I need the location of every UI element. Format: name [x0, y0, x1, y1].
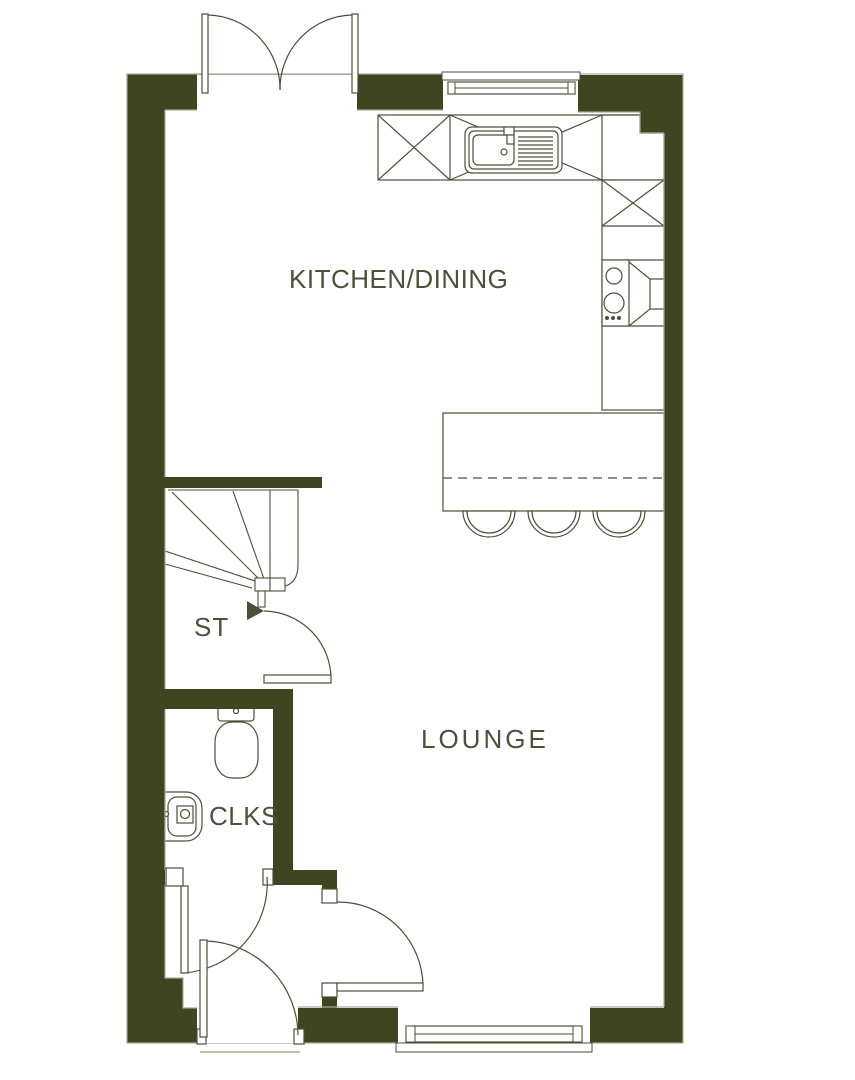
toilet — [215, 701, 258, 778]
floor-area — [127, 74, 683, 1043]
french-door-leaf-left — [202, 14, 208, 93]
front-door-leaf — [200, 940, 207, 1037]
understairs-door-leaf — [264, 675, 331, 683]
cloakroom-door-leaf — [181, 886, 188, 973]
wall-left-step1 — [127, 978, 183, 1008]
french-door-leaf-right — [352, 14, 358, 93]
lounge-door-leaf — [337, 983, 423, 991]
wash-basin — [164, 792, 203, 841]
wall-left-step2 — [127, 1008, 197, 1043]
kitchen-sink — [465, 127, 562, 173]
wall-right — [664, 75, 683, 1043]
lounge-window — [396, 1008, 592, 1052]
room-label-kitchen-dining: KITCHEN/DINING — [289, 266, 508, 292]
wall-left — [127, 74, 165, 978]
bar-stools — [463, 511, 645, 537]
wall-top-mid — [357, 74, 443, 110]
room-label-lounge: LOUNGE — [421, 726, 549, 752]
window-sill — [396, 1043, 592, 1052]
wall-bottom-left — [298, 1008, 398, 1043]
wall-cloakroom-top — [165, 689, 293, 709]
room-label-store: ST — [194, 614, 229, 640]
room-label-cloakroom: CLKS — [209, 803, 279, 829]
floor-plan-drawing — [0, 0, 855, 1080]
wall-bottom-right — [590, 1008, 683, 1043]
floor-plan-page: KITCHEN/DINING LOUNGE ST CLKS — [0, 0, 855, 1080]
kitchen-window — [442, 72, 580, 111]
breakfast-bar — [443, 413, 664, 511]
wall-stair-edge — [165, 477, 322, 488]
french-doors — [197, 14, 358, 110]
